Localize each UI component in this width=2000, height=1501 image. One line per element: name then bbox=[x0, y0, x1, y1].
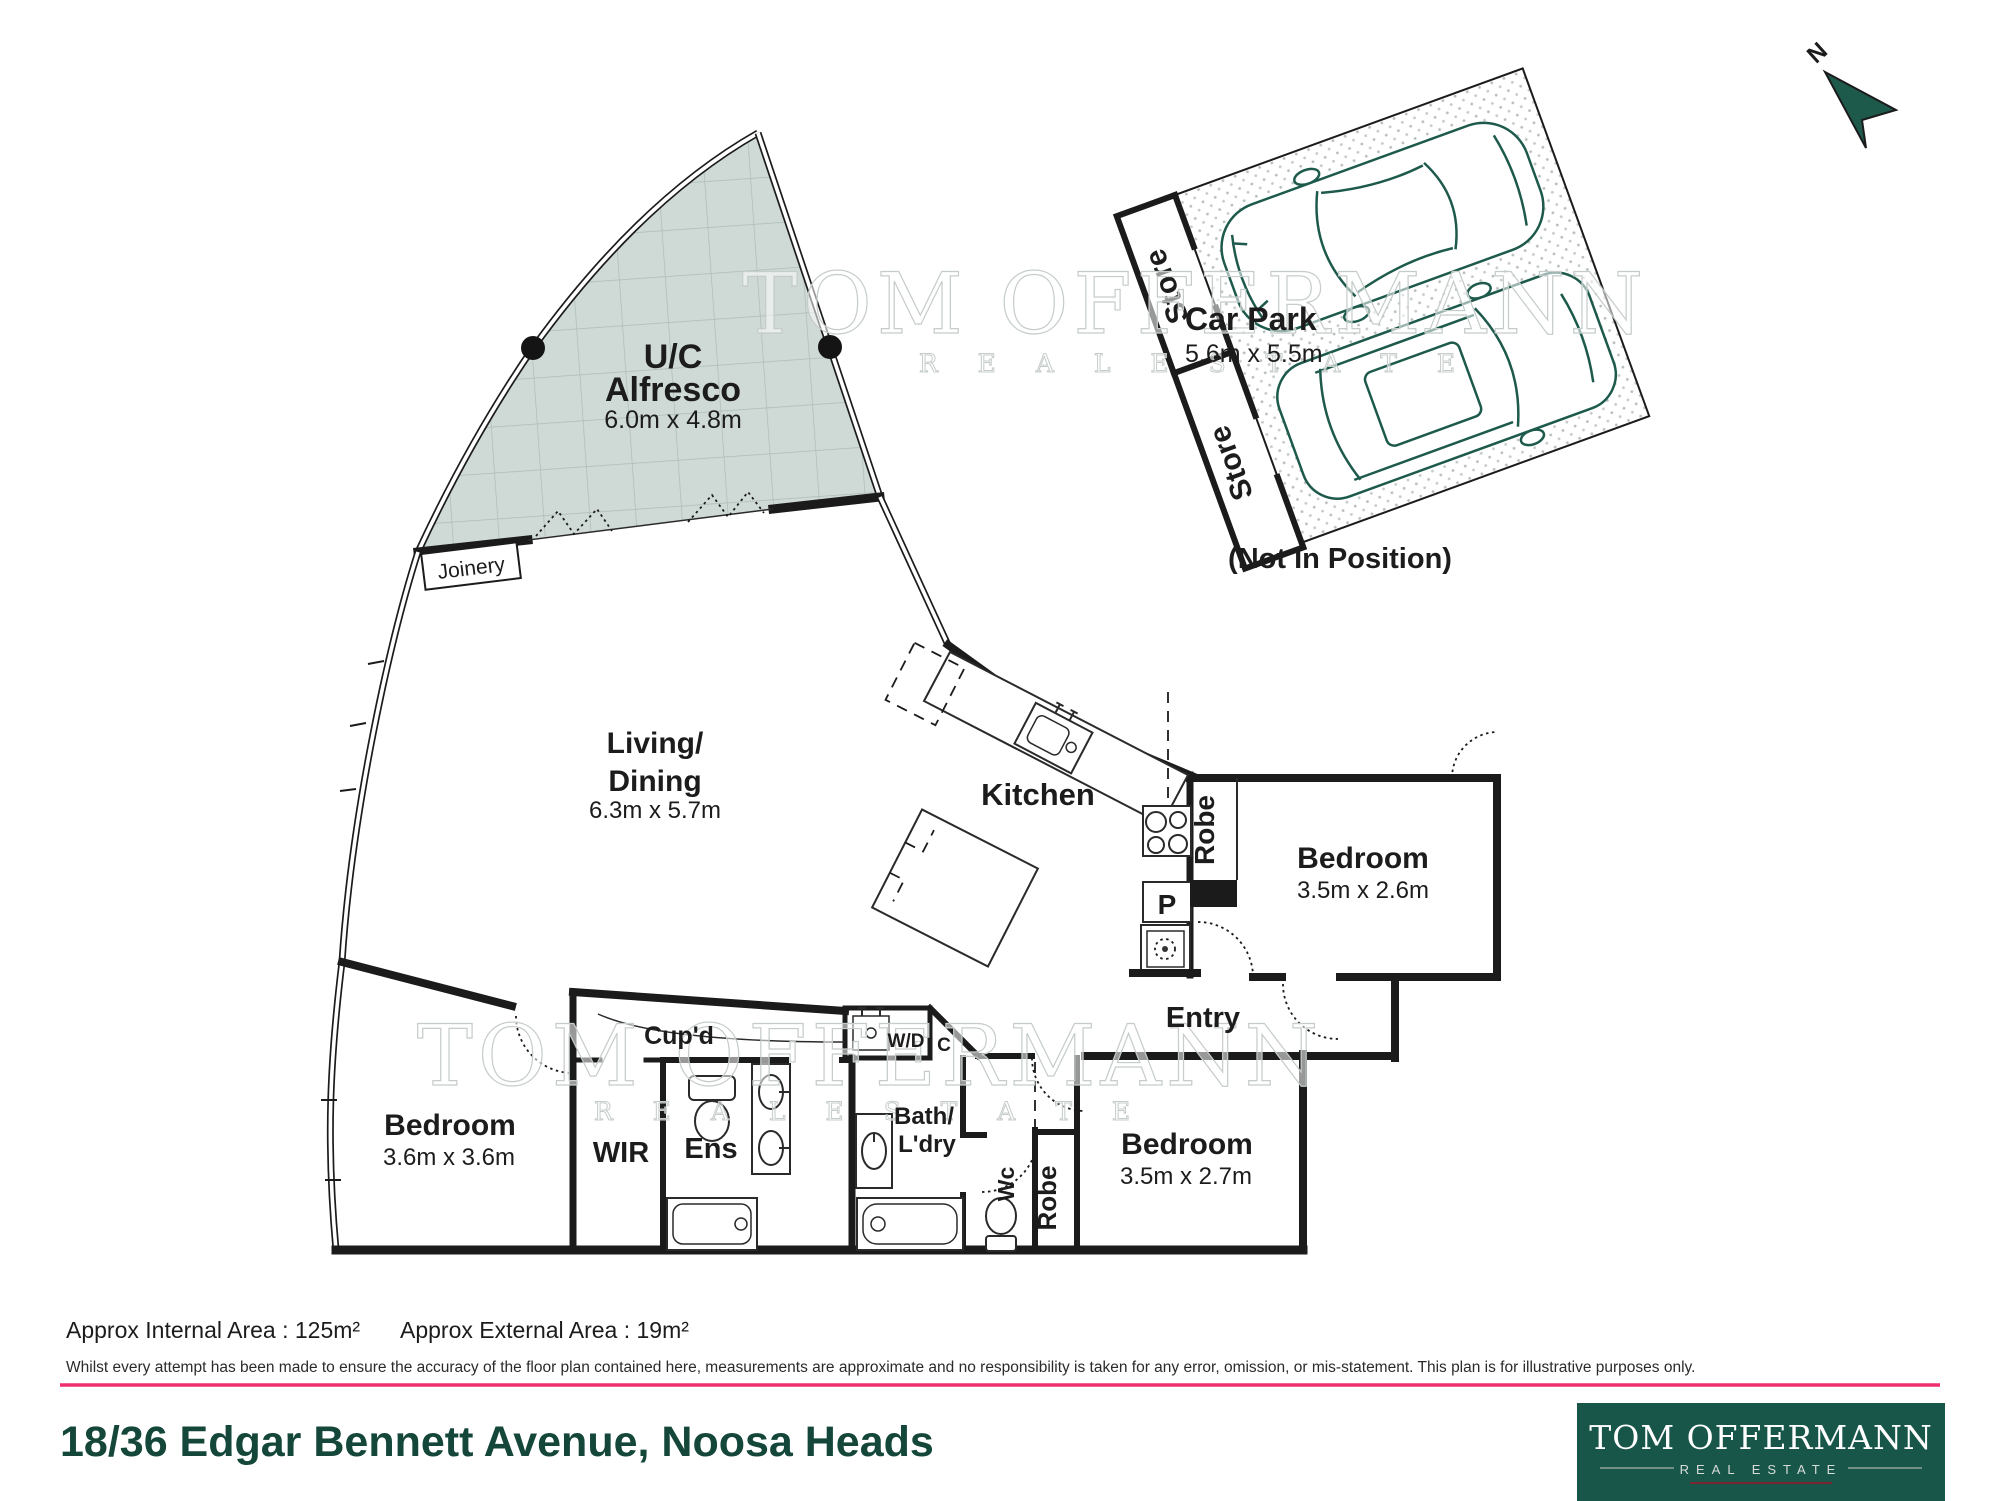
wc-label: Wc bbox=[993, 1167, 1019, 1202]
wd-label: W/D bbox=[888, 1031, 925, 1052]
floor-plan-canvas: Store Store bbox=[0, 0, 2000, 1501]
bath-label-1: Bath/ bbox=[894, 1103, 954, 1130]
carpark-dims: 5.6m x 5.5m bbox=[1185, 340, 1323, 368]
carpark-label: Car Park bbox=[1185, 301, 1317, 337]
bedroom-bottom-dims: 3.5m x 2.7m bbox=[1120, 1163, 1252, 1190]
wc-toilet bbox=[986, 1198, 1016, 1234]
post-dot-left bbox=[521, 336, 545, 360]
north-arrow: N bbox=[1802, 37, 1896, 148]
store-bottom-label: Store bbox=[1203, 421, 1260, 504]
logo-brand: TOM OFFERMANN bbox=[1589, 1418, 1933, 1457]
bedroom-bottom-label: Bedroom bbox=[1121, 1128, 1253, 1161]
shower bbox=[667, 1198, 757, 1250]
bedroom-right-label: Bedroom bbox=[1297, 842, 1429, 875]
island-bench bbox=[872, 809, 1038, 966]
north-arrow-shape bbox=[1825, 72, 1896, 148]
kitchen-label: Kitchen bbox=[981, 777, 1095, 812]
pantry-label: P bbox=[1158, 889, 1177, 920]
cupboard-label: Cup'd bbox=[644, 1022, 714, 1050]
carpark-note: (Not In Position) bbox=[1228, 543, 1452, 575]
brand-logo: TOM OFFERMANN REAL ESTATE bbox=[1577, 1403, 1945, 1501]
logo-tagline: REAL ESTATE bbox=[1680, 1462, 1843, 1477]
exterior-door bbox=[1452, 732, 1497, 778]
north-label: N bbox=[1802, 37, 1833, 69]
c-label: C bbox=[937, 1035, 951, 1056]
address-title: 18/36 Edgar Bennett Avenue, Noosa Heads bbox=[60, 1418, 934, 1466]
area-external: Approx External Area : 19m² bbox=[400, 1317, 689, 1343]
alfresco-dims: 6.0m x 4.8m bbox=[604, 406, 742, 434]
bedroom-right-door bbox=[1198, 922, 1253, 977]
bedroom-right-dims: 3.5m x 2.6m bbox=[1297, 877, 1429, 904]
living-label-1: Living/ bbox=[607, 727, 704, 760]
entry-label: Entry bbox=[1166, 1002, 1240, 1034]
alfresco-label-2: Alfresco bbox=[605, 371, 741, 409]
ensuite-label: Ens bbox=[684, 1133, 737, 1165]
bath-label-2: L'dry bbox=[898, 1131, 956, 1158]
area-internal: Approx Internal Area : 125m² bbox=[66, 1317, 360, 1343]
robe-right-label: Robe bbox=[1189, 795, 1220, 865]
bathtub bbox=[857, 1198, 963, 1250]
watermark-text: R E A L E S T A T E bbox=[594, 1097, 1146, 1126]
living-dims: 6.3m x 5.7m bbox=[589, 797, 721, 824]
living-label-2: Dining bbox=[608, 765, 701, 798]
disclaimer: Whilst every attempt has been made to en… bbox=[66, 1359, 1695, 1376]
footer: Approx Internal Area : 125m² Approx Exte… bbox=[60, 1317, 1945, 1501]
wir-label: WIR bbox=[593, 1137, 649, 1169]
bedroom-left-dims: 3.6m x 3.6m bbox=[383, 1144, 515, 1171]
bedroom-left-label: Bedroom bbox=[384, 1109, 516, 1142]
robe-bottom-label: Robe bbox=[1032, 1166, 1062, 1231]
wall-block bbox=[1190, 880, 1237, 907]
